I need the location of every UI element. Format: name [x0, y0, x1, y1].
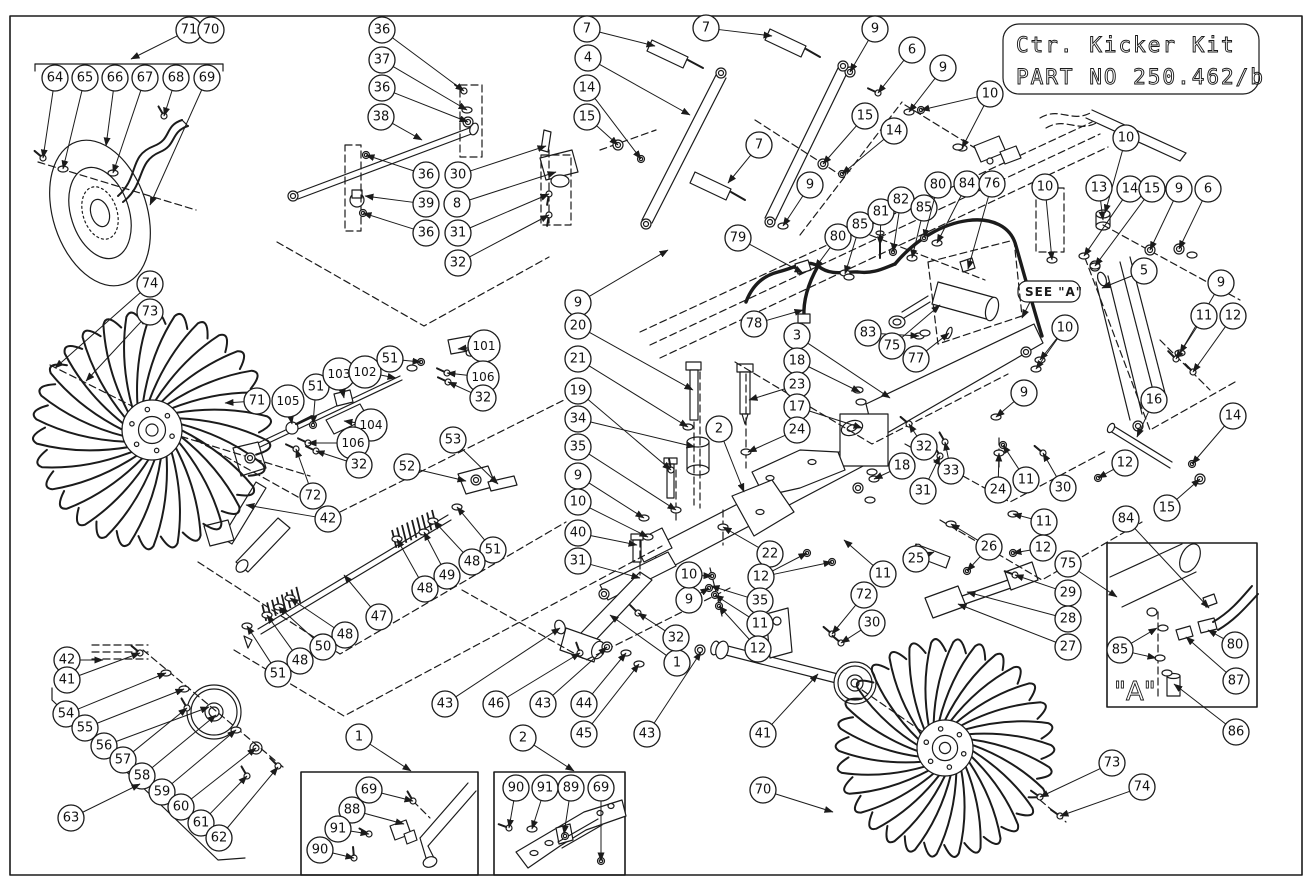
balloon-71: 71 — [131, 17, 202, 59]
svg-text:70: 70 — [203, 23, 220, 38]
svg-text:31: 31 — [570, 554, 587, 569]
balloon-10: 10 — [921, 81, 1003, 148]
svg-text:14: 14 — [1122, 182, 1139, 197]
balloon-7: 7 — [728, 132, 772, 183]
balloon-62: 62 — [206, 767, 278, 851]
balloon-59: 59 — [149, 730, 236, 805]
balloon-57: 57 — [110, 708, 187, 773]
svg-text:80: 80 — [930, 178, 947, 193]
svg-text:14: 14 — [579, 81, 596, 96]
svg-text:2: 2 — [519, 731, 527, 746]
balloon-9: 9 — [850, 16, 888, 72]
balloon-105: 105 — [272, 385, 304, 424]
svg-text:57: 57 — [115, 753, 132, 768]
balloon-42: 42 — [246, 505, 341, 532]
svg-text:72: 72 — [305, 489, 322, 504]
svg-text:10: 10 — [1118, 131, 1135, 146]
see-a-text: SEE "A" — [1025, 285, 1083, 299]
svg-text:26: 26 — [981, 540, 998, 555]
svg-text:51: 51 — [382, 352, 399, 367]
balloon-33: 33 — [938, 442, 964, 484]
svg-text:15: 15 — [857, 109, 874, 124]
svg-text:7: 7 — [702, 21, 710, 36]
svg-text:2: 2 — [715, 422, 723, 437]
svg-text:79: 79 — [730, 231, 747, 246]
balloon-36: 36 — [363, 213, 439, 246]
svg-text:80: 80 — [830, 230, 847, 245]
svg-text:23: 23 — [789, 378, 806, 393]
svg-text:56: 56 — [96, 739, 113, 754]
svg-text:43: 43 — [639, 727, 656, 742]
svg-text:69: 69 — [199, 71, 216, 86]
svg-text:10: 10 — [570, 495, 587, 510]
svg-text:28: 28 — [1060, 612, 1077, 627]
svg-text:38: 38 — [373, 110, 390, 125]
generated-parts — [33, 61, 1205, 865]
svg-text:70: 70 — [755, 783, 772, 798]
main-beams — [600, 324, 1043, 600]
part-number: PART NO 250.462/b — [1016, 65, 1265, 89]
balloon-72: 72 — [296, 449, 326, 509]
svg-text:60: 60 — [173, 800, 190, 815]
svg-text:59: 59 — [154, 785, 171, 800]
svg-text:15: 15 — [1159, 501, 1176, 516]
svg-text:30: 30 — [450, 168, 467, 183]
svg-text:36: 36 — [418, 226, 435, 241]
balloon-15: 15 — [1154, 479, 1200, 521]
svg-text:32: 32 — [450, 256, 467, 271]
svg-text:4: 4 — [584, 51, 592, 66]
svg-text:76: 76 — [984, 177, 1001, 192]
svg-text:75: 75 — [1060, 557, 1077, 572]
svg-text:49: 49 — [439, 569, 456, 584]
svg-text:7: 7 — [583, 22, 591, 37]
svg-text:74: 74 — [1134, 780, 1151, 795]
svg-text:15: 15 — [1144, 182, 1161, 197]
balloon-9: 9 — [676, 587, 709, 613]
svg-text:74: 74 — [142, 277, 159, 292]
svg-text:35: 35 — [570, 440, 587, 455]
svg-text:53: 53 — [445, 433, 462, 448]
svg-text:11: 11 — [1036, 515, 1053, 530]
svg-text:91: 91 — [330, 822, 347, 837]
center-cylinder — [889, 282, 1001, 339]
balloon-63: 63 — [58, 784, 140, 831]
svg-text:12: 12 — [750, 642, 767, 657]
svg-text:3: 3 — [793, 329, 801, 344]
svg-text:31: 31 — [450, 226, 467, 241]
balloon-70: 70 — [750, 777, 833, 812]
svg-text:43: 43 — [535, 697, 552, 712]
svg-text:35: 35 — [752, 594, 769, 609]
svg-text:46: 46 — [488, 697, 505, 712]
balloon-73: 73 — [1040, 750, 1125, 797]
svg-text:84: 84 — [1118, 512, 1135, 527]
svg-text:51: 51 — [485, 543, 502, 558]
svg-text:9: 9 — [685, 593, 693, 608]
balloon-1: 1 — [346, 724, 411, 771]
svg-text:36: 36 — [374, 81, 391, 96]
svg-text:11: 11 — [875, 567, 892, 582]
svg-text:89: 89 — [563, 781, 580, 796]
svg-text:85: 85 — [916, 201, 933, 216]
disc-wheel-assembly — [32, 64, 223, 299]
balloon-9: 9 — [565, 250, 668, 316]
balloon-66: 66 — [102, 65, 128, 146]
balloon-12: 12 — [1098, 450, 1138, 478]
svg-text:106: 106 — [342, 436, 365, 450]
svg-text:72: 72 — [856, 588, 873, 603]
balloon-51: 51 — [247, 626, 291, 687]
svg-text:88: 88 — [344, 803, 361, 818]
balloon-69: 69 — [356, 777, 413, 803]
svg-text:102: 102 — [354, 365, 377, 379]
balloon-2: 2 — [510, 725, 574, 771]
svg-text:17: 17 — [789, 400, 806, 415]
balloon-10: 10 — [676, 562, 712, 588]
svg-text:22: 22 — [762, 547, 779, 562]
svg-text:44: 44 — [576, 697, 593, 712]
balloon-15: 15 — [574, 104, 618, 145]
svg-text:78: 78 — [746, 317, 763, 332]
svg-text:54: 54 — [58, 707, 75, 722]
balloon-9: 9 — [996, 380, 1037, 417]
svg-text:19: 19 — [570, 384, 587, 399]
drawing-border — [10, 16, 1302, 875]
balloon-47: 47 — [344, 575, 392, 630]
svg-text:103: 103 — [328, 367, 351, 381]
balloon-24: 24 — [985, 453, 1011, 503]
svg-text:14: 14 — [886, 124, 903, 139]
svg-text:20: 20 — [570, 319, 587, 334]
svg-text:51: 51 — [270, 667, 287, 682]
balloon-7: 7 — [693, 15, 772, 41]
balloon-11: 11 — [844, 540, 896, 587]
balloon-68: 68 — [163, 65, 189, 116]
svg-text:9: 9 — [1175, 182, 1183, 197]
balloon-55: 55 — [72, 689, 184, 741]
hub-assembly — [52, 645, 262, 860]
svg-text:64: 64 — [47, 71, 64, 86]
svg-text:14: 14 — [1225, 409, 1242, 424]
balloon-15: 15 — [823, 103, 878, 164]
svg-text:37: 37 — [374, 53, 391, 68]
balloon-24: 24 — [748, 417, 810, 452]
balloon-32: 32 — [638, 613, 689, 651]
svg-text:48: 48 — [417, 582, 434, 597]
svg-text:85: 85 — [1112, 643, 1129, 658]
svg-text:47: 47 — [371, 610, 388, 625]
svg-text:9: 9 — [871, 22, 879, 37]
svg-text:12: 12 — [1117, 456, 1134, 471]
svg-text:10: 10 — [1037, 180, 1054, 195]
balloon-91: 91 — [325, 816, 369, 842]
svg-text:11: 11 — [1196, 309, 1213, 324]
svg-text:9: 9 — [574, 296, 582, 311]
svg-text:11: 11 — [752, 617, 769, 632]
balloon-38: 38 — [368, 104, 422, 140]
balloon-85: 85 — [1107, 628, 1157, 663]
svg-text:81: 81 — [873, 205, 890, 220]
svg-text:12: 12 — [1035, 541, 1052, 556]
svg-text:43: 43 — [437, 697, 454, 712]
svg-text:50: 50 — [315, 640, 332, 655]
balloon-70: 70 — [198, 17, 224, 43]
svg-text:15: 15 — [579, 110, 596, 125]
balloon-14: 14 — [1192, 403, 1246, 464]
balloon-90: 90 — [307, 837, 354, 863]
svg-text:80: 80 — [1227, 638, 1244, 653]
balloon-58: 58 — [129, 715, 216, 789]
svg-text:16: 16 — [1146, 393, 1163, 408]
balloon-90: 90 — [503, 775, 529, 828]
svg-text:75: 75 — [884, 339, 901, 354]
svg-text:12: 12 — [753, 570, 770, 585]
svg-text:24: 24 — [789, 423, 806, 438]
balloon-41: 41 — [750, 674, 818, 747]
svg-text:13: 13 — [1091, 181, 1108, 196]
svg-text:12: 12 — [1225, 309, 1242, 324]
balloon-44: 44 — [571, 653, 626, 717]
svg-text:32: 32 — [351, 458, 368, 473]
svg-text:33: 33 — [943, 464, 960, 479]
svg-text:39: 39 — [418, 197, 435, 212]
lower-right-link — [911, 543, 1038, 618]
svg-text:9: 9 — [1020, 386, 1028, 401]
svg-text:85: 85 — [852, 218, 869, 233]
svg-text:91: 91 — [537, 781, 554, 796]
balloon-12: 12 — [1013, 535, 1056, 561]
svg-text:29: 29 — [1060, 586, 1077, 601]
balloon-2: 2 — [706, 416, 744, 492]
svg-text:106: 106 — [472, 370, 495, 384]
exploded-parts-diagram: Ctr. Kicker Kit PART NO 250.462/b — [0, 0, 1311, 889]
svg-text:21: 21 — [570, 352, 587, 367]
svg-text:67: 67 — [137, 71, 154, 86]
pin-cylinder-cluster — [540, 130, 578, 187]
svg-text:42: 42 — [59, 653, 76, 668]
see-a-callout: SEE "A" — [1018, 281, 1083, 318]
balloon-9: 9 — [783, 172, 823, 226]
svg-text:61: 61 — [193, 816, 210, 831]
svg-text:1: 1 — [355, 730, 363, 745]
svg-text:32: 32 — [668, 631, 685, 646]
balloon-7: 7 — [574, 16, 655, 46]
balloon-40: 40 — [565, 520, 637, 546]
balloon-32: 32 — [909, 424, 937, 460]
svg-text:11: 11 — [1018, 473, 1035, 488]
title-block: Ctr. Kicker Kit PART NO 250.462/b — [1003, 24, 1265, 94]
svg-text:87: 87 — [1228, 674, 1245, 689]
svg-text:45: 45 — [576, 727, 593, 742]
svg-text:48: 48 — [337, 628, 354, 643]
svg-text:42: 42 — [320, 512, 337, 527]
svg-text:41: 41 — [755, 727, 772, 742]
balloon-80: 80 — [1208, 630, 1248, 658]
svg-text:83: 83 — [860, 326, 877, 341]
balloon-79: 79 — [725, 225, 803, 273]
svg-text:9: 9 — [1217, 276, 1225, 291]
svg-text:9: 9 — [939, 61, 947, 76]
balloon-80: 80 — [815, 224, 851, 268]
svg-text:6: 6 — [1204, 182, 1212, 197]
svg-text:48: 48 — [464, 555, 481, 570]
balloon-11: 11 — [1013, 509, 1057, 535]
svg-text:90: 90 — [508, 781, 525, 796]
svg-text:66: 66 — [107, 71, 124, 86]
svg-text:10: 10 — [982, 87, 999, 102]
svg-text:69: 69 — [593, 781, 610, 796]
svg-text:68: 68 — [168, 71, 185, 86]
svg-text:51: 51 — [308, 380, 325, 395]
svg-text:25: 25 — [908, 552, 925, 567]
svg-text:18: 18 — [894, 459, 911, 474]
svg-text:27: 27 — [1060, 640, 1077, 655]
svg-text:10: 10 — [1057, 321, 1074, 336]
kit-title: Ctr. Kicker Kit — [1016, 33, 1236, 57]
svg-text:86: 86 — [1228, 725, 1245, 740]
svg-text:73: 73 — [1104, 756, 1121, 771]
svg-text:69: 69 — [361, 783, 378, 798]
balloon-14: 14 — [842, 118, 907, 174]
svg-text:18: 18 — [789, 354, 806, 369]
svg-text:55: 55 — [77, 721, 94, 736]
svg-text:30: 30 — [864, 616, 881, 631]
svg-text:77: 77 — [908, 352, 925, 367]
svg-text:48: 48 — [292, 654, 309, 669]
svg-text:58: 58 — [134, 769, 151, 784]
balloon-64: 64 — [42, 65, 68, 158]
svg-text:84: 84 — [959, 177, 976, 192]
balloon-39: 39 — [365, 191, 439, 217]
svg-text:52: 52 — [399, 460, 416, 475]
svg-text:9: 9 — [806, 178, 814, 193]
balloon-77: 77 — [903, 333, 949, 372]
balloon-6: 6 — [878, 37, 925, 93]
svg-text:34: 34 — [570, 412, 587, 427]
svg-text:71: 71 — [181, 23, 198, 38]
svg-text:36: 36 — [374, 23, 391, 38]
balloon-91: 91 — [532, 775, 558, 829]
svg-text:65: 65 — [77, 71, 94, 86]
svg-text:10: 10 — [681, 568, 698, 583]
svg-text:73: 73 — [142, 305, 159, 320]
svg-text:8: 8 — [453, 197, 461, 212]
svg-text:7: 7 — [755, 138, 763, 153]
svg-text:5: 5 — [1140, 264, 1148, 279]
svg-text:62: 62 — [211, 831, 228, 846]
svg-text:24: 24 — [990, 483, 1007, 498]
svg-text:82: 82 — [893, 193, 910, 208]
svg-text:32: 32 — [475, 391, 492, 406]
svg-text:41: 41 — [59, 673, 76, 688]
svg-text:9: 9 — [574, 469, 582, 484]
svg-text:71: 71 — [249, 394, 266, 409]
svg-text:31: 31 — [915, 484, 932, 499]
svg-text:101: 101 — [473, 339, 496, 353]
detail-a-label: "A" — [1114, 677, 1156, 707]
svg-text:6: 6 — [908, 43, 916, 58]
svg-text:90: 90 — [312, 843, 329, 858]
svg-text:40: 40 — [570, 526, 587, 541]
svg-text:63: 63 — [63, 811, 80, 826]
svg-text:36: 36 — [418, 168, 435, 183]
svg-text:105: 105 — [277, 394, 300, 408]
svg-text:32: 32 — [916, 440, 933, 455]
balloon-30: 30 — [1043, 453, 1076, 501]
svg-text:1: 1 — [673, 656, 681, 671]
svg-text:30: 30 — [1055, 481, 1072, 496]
frame-hidden-lines — [640, 110, 1186, 358]
